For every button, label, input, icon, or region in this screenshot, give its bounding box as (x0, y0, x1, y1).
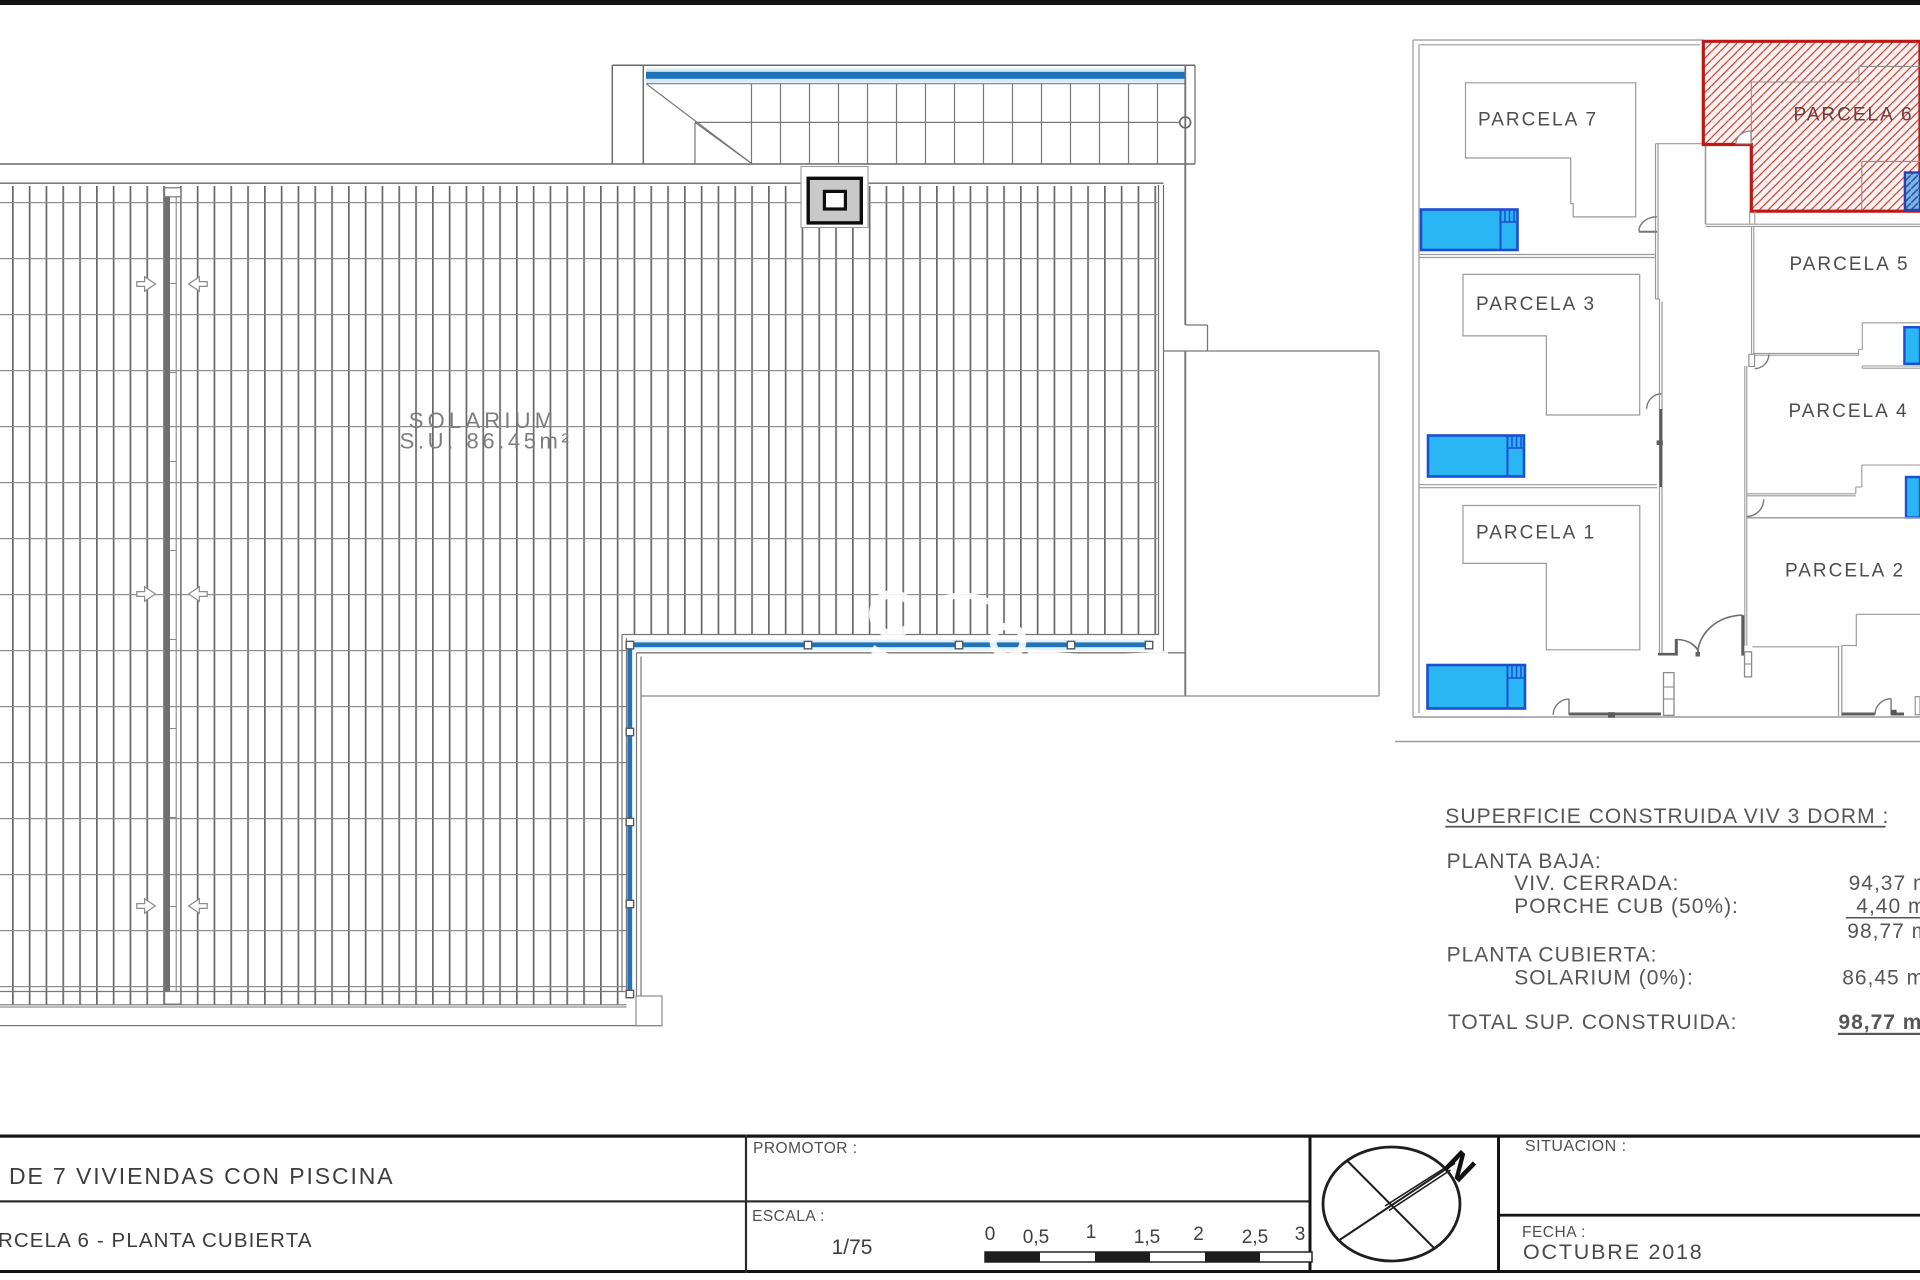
svg-text:TOTAL SUP. CONSTRUIDA:: TOTAL SUP. CONSTRUIDA: (1448, 1011, 1738, 1034)
svg-text:PARCELA 4: PARCELA 4 (1788, 401, 1908, 422)
svg-text:PLANTA BAJA:: PLANTA BAJA: (1447, 850, 1602, 873)
svg-text:PLANTA CUBIERTA:: PLANTA CUBIERTA: (1447, 944, 1658, 967)
svg-text:SOLARIUM (0%):: SOLARIUM (0%): (1514, 967, 1694, 990)
svg-text:1,5: 1,5 (1134, 1227, 1160, 1248)
svg-text:VIV. CERRADA:: VIV. CERRADA: (1514, 872, 1679, 895)
svg-text:PARCELA 7: PARCELA 7 (1478, 110, 1598, 131)
svg-text:4,40 m²: 4,40 m² (1856, 895, 1920, 918)
svg-text:1: 1 (1086, 1222, 1097, 1243)
svg-text:86,45 m²: 86,45 m² (1842, 967, 1920, 990)
svg-text:98,77 m²: 98,77 m² (1847, 920, 1920, 943)
svg-text:94,37 m²: 94,37 m² (1849, 872, 1920, 895)
svg-text:0: 0 (985, 1224, 996, 1245)
svg-text:3: 3 (1295, 1224, 1306, 1245)
svg-text:PARCELA 1: PARCELA 1 (1476, 523, 1596, 544)
svg-text:PARCELA 3: PARCELA 3 (1476, 294, 1596, 315)
svg-text:RCELA 6 - PLANTA CUBIERTA: RCELA 6 - PLANTA CUBIERTA (0, 1229, 313, 1252)
svg-text:S.U. 86.45m²: S.U. 86.45m² (400, 429, 573, 454)
svg-text:DE 7 VIVIENDAS CON PISCINA: DE 7 VIVIENDAS CON PISCINA (9, 1163, 395, 1189)
svg-text:OCTUBRE 2018: OCTUBRE 2018 (1523, 1240, 1704, 1264)
svg-text:98,77 m²: 98,77 m² (1838, 1011, 1920, 1034)
svg-text:SITUACION :: SITUACION : (1525, 1138, 1627, 1155)
svg-text:2,5: 2,5 (1242, 1227, 1268, 1248)
svg-text:PORCHE CUB (50%):: PORCHE CUB (50%): (1514, 895, 1739, 918)
svg-text:PARCELA 2: PARCELA 2 (1785, 561, 1905, 582)
svg-text:PARCELA 5: PARCELA 5 (1789, 254, 1909, 275)
svg-text:ESCALA :: ESCALA : (752, 1208, 825, 1225)
svg-text:PROMOTOR :: PROMOTOR : (753, 1140, 858, 1157)
svg-text:0,5: 0,5 (1023, 1227, 1049, 1248)
svg-text:1/75: 1/75 (832, 1236, 873, 1259)
svg-text:PARCELA 6: PARCELA 6 (1793, 105, 1913, 126)
svg-text:SUPERFICIE CONSTRUIDA VIV 3 DO: SUPERFICIE CONSTRUIDA VIV 3 DORM : (1445, 805, 1889, 828)
svg-text:2: 2 (1193, 1224, 1204, 1245)
svg-text:FECHA :: FECHA : (1522, 1224, 1586, 1241)
